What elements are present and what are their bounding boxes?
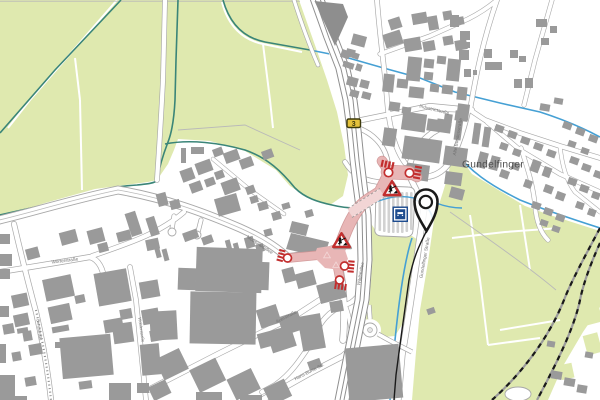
svg-text:Gundelfinger: Gundelfinger [462,160,524,171]
svg-text:3: 3 [352,121,356,128]
